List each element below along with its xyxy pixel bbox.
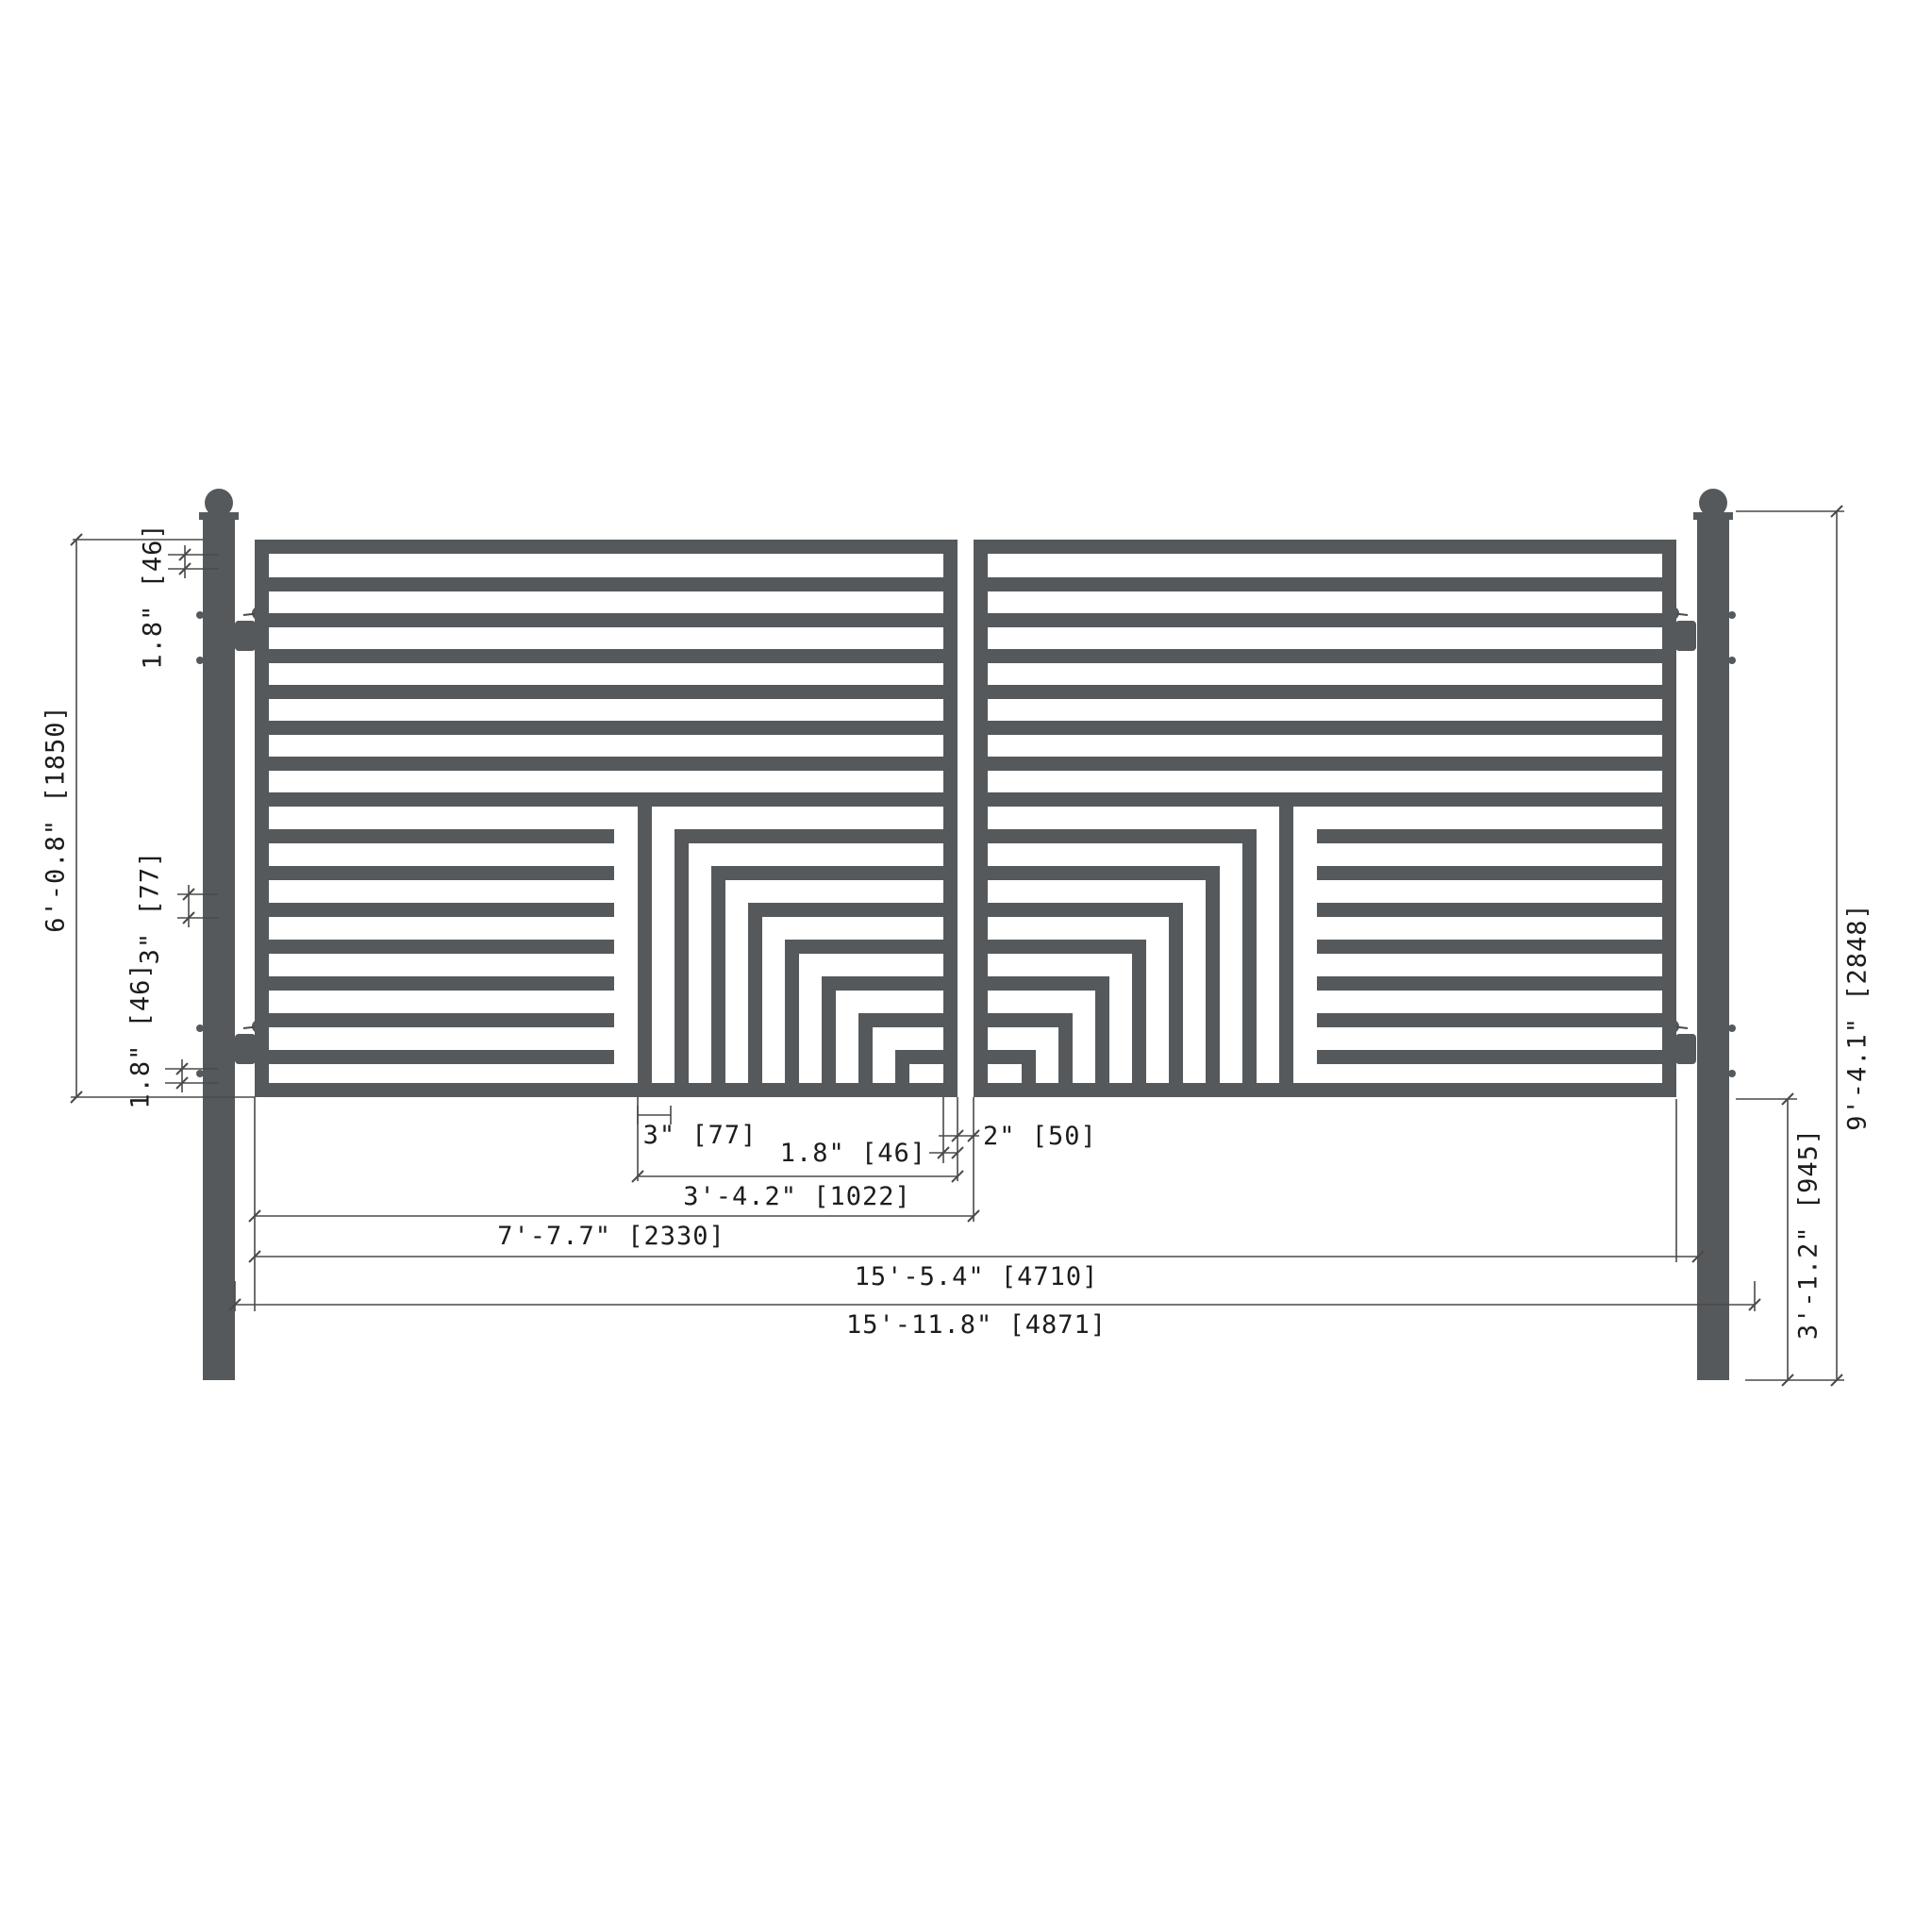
pattern-arm: [988, 829, 1257, 843]
dim-post-height: 9'-4.1" [2848]: [1843, 903, 1873, 1131]
right-post: [1693, 489, 1736, 1380]
hinge-body: [1675, 1034, 1696, 1064]
pattern-leg: [785, 940, 799, 1083]
gate-bar: [269, 829, 614, 843]
pattern-leg: [822, 976, 836, 1083]
gate-bar: [269, 649, 943, 663]
gate-bar: [988, 792, 1662, 807]
hinge-body: [235, 621, 256, 651]
hinge-body: [235, 1034, 256, 1064]
dim-left-top-gap: 1.8" [46]: [139, 523, 168, 669]
pattern-arm: [785, 940, 943, 954]
right-panel-frame-bottom: [974, 1083, 1676, 1097]
dim-overall-width: 15'-11.8" [4871]: [846, 1310, 1107, 1340]
pattern-arm: [988, 1050, 1036, 1064]
gate-bar: [1317, 940, 1662, 954]
pattern-arm: [858, 1013, 943, 1027]
pattern-leg: [748, 903, 762, 1083]
dim-pattern-spacing: 3" [77]: [643, 1121, 758, 1150]
gate-bar: [269, 685, 943, 699]
gate-technical-drawing: 1.8" [46] 6'-0.8" [1850] 3" [77] 1.8" [4…: [0, 0, 1932, 1932]
left-post-body: [203, 518, 235, 1380]
gate-bar: [269, 721, 943, 735]
right-panel-infill: [988, 577, 1662, 1083]
gate-bar: [988, 757, 1662, 771]
right-gate-panel: [974, 540, 1676, 1097]
dim-panel-height: 6'-0.8" [1850]: [42, 705, 71, 933]
pattern-arm: [988, 903, 1183, 917]
right-post-bolt-bottom: [1728, 1024, 1736, 1032]
dim-pattern-width: 3'-4.2" [1022]: [683, 1182, 911, 1211]
gate-bar: [988, 649, 1662, 663]
gate-bar: [269, 903, 614, 917]
gate-bar: [1317, 866, 1662, 880]
pattern-arm: [988, 866, 1220, 880]
pattern-arm: [988, 1013, 1073, 1027]
left-panel-frame-right: [943, 540, 958, 1097]
dim-frame-tube: 1.8" [46]: [780, 1139, 926, 1168]
right-panel-frame-left: [974, 540, 988, 1097]
pattern-arm: [895, 1050, 943, 1064]
dim-left-bottom-gap: 1.8" [46]: [126, 962, 156, 1108]
dim-ground-clearance: 3'-1.2" [945]: [1794, 1128, 1824, 1340]
gate-bar: [269, 866, 614, 880]
gate-bar: [269, 792, 943, 807]
right-post-bolt-bottom2: [1728, 1070, 1736, 1077]
pattern-arm: [748, 903, 943, 917]
gate-bar: [1317, 1013, 1662, 1027]
gate-bar: [988, 613, 1662, 627]
left-panel-infill: [269, 577, 943, 1083]
left-panel-frame-bottom: [255, 1083, 958, 1097]
gate-bar: [988, 685, 1662, 699]
gate-bar: [269, 1050, 614, 1064]
dim-bar-spacing: 3" [77]: [136, 851, 165, 965]
left-post-bolt-bottom2: [196, 1070, 204, 1077]
gate-bar: [1317, 903, 1662, 917]
left-panel-frame-top: [255, 540, 958, 554]
drawing-page: 1.8" [46] 6'-0.8" [1850] 3" [77] 1.8" [4…: [0, 0, 1932, 1932]
gate-bar: [1317, 1050, 1662, 1064]
gate-bar: [1317, 976, 1662, 991]
gate-bar: [269, 1013, 614, 1027]
gate-bar: [1317, 829, 1662, 843]
dim-leaf-width: 7'-7.7" [2330]: [497, 1222, 725, 1251]
pattern-leg: [1206, 866, 1220, 1083]
pattern-leg: [1095, 976, 1109, 1083]
pattern-arm: [988, 976, 1109, 991]
gate-bar: [269, 613, 943, 627]
gate-bar: [269, 757, 943, 771]
left-gate-panel: [255, 540, 958, 1097]
gate-bar: [269, 577, 943, 591]
dim-center-gap: 2" [50]: [983, 1122, 1097, 1151]
gate-bar: [269, 940, 614, 954]
pattern-leg: [1279, 792, 1293, 1083]
left-post: [196, 489, 239, 1380]
right-panel-frame-top: [974, 540, 1676, 554]
pattern-leg: [1242, 829, 1257, 1083]
pattern-arm: [675, 829, 943, 843]
right-panel-frame-right: [1662, 540, 1676, 1097]
gate-bar: [269, 976, 614, 991]
hinge-body: [1675, 621, 1696, 651]
pattern-arm: [711, 866, 943, 880]
gate-bar: [988, 577, 1662, 591]
pattern-arm: [988, 940, 1146, 954]
pattern-arm: [822, 976, 943, 991]
left-post-bolt-bottom: [196, 1024, 204, 1032]
dim-gates-width: 15'-5.4" [4710]: [855, 1262, 1099, 1291]
right-post-bolt-top: [1728, 611, 1736, 619]
gate-bar: [988, 721, 1662, 735]
pattern-leg: [711, 866, 725, 1083]
pattern-leg: [638, 792, 652, 1083]
left-post-bolt-top2: [196, 657, 204, 664]
right-post-bolt-top2: [1728, 657, 1736, 664]
right-post-body: [1697, 518, 1729, 1380]
left-post-bolt-top: [196, 611, 204, 619]
pattern-leg: [1132, 940, 1146, 1083]
pattern-leg: [1169, 903, 1183, 1083]
pattern-leg: [675, 829, 689, 1083]
left-panel-frame-left: [255, 540, 269, 1097]
